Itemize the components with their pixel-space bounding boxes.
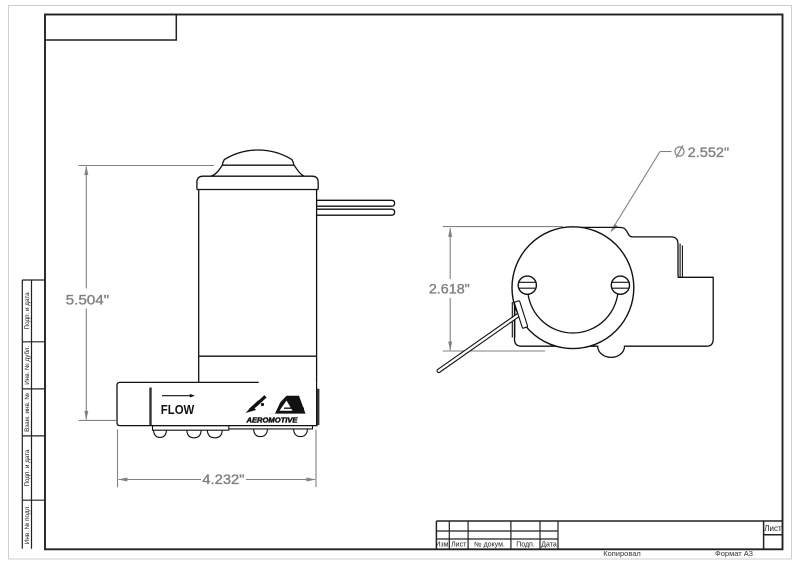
svg-text:2.618": 2.618" — [429, 281, 470, 297]
svg-text:Лист: Лист — [764, 524, 782, 533]
svg-text:AEROMOTIVE: AEROMOTIVE — [245, 416, 297, 425]
svg-text:FLOW: FLOW — [161, 403, 195, 417]
svg-text:Лист: Лист — [451, 542, 467, 549]
svg-text:Копировал: Копировал — [603, 549, 641, 558]
svg-text:Подп. и дата: Подп. и дата — [24, 292, 31, 330]
svg-text:Инв. № подл.: Инв. № подл. — [24, 505, 31, 544]
svg-text:Формат А3: Формат А3 — [715, 549, 753, 558]
svg-text:№ докум.: № докум. — [474, 542, 505, 549]
svg-text:Подп. и дата: Подп. и дата — [24, 449, 31, 487]
svg-text:4.232": 4.232" — [202, 472, 244, 488]
svg-text:Дата: Дата — [541, 542, 557, 549]
svg-text:Изм.: Изм. — [435, 542, 450, 549]
svg-text:2.552": 2.552" — [688, 145, 729, 161]
svg-text:Инв. № дубл.: Инв. № дубл. — [23, 346, 31, 385]
svg-text:5.504": 5.504" — [66, 292, 110, 308]
svg-text:Взам. инв. №: Взам. инв. № — [24, 393, 31, 432]
svg-text:Подп.: Подп. — [516, 542, 535, 549]
